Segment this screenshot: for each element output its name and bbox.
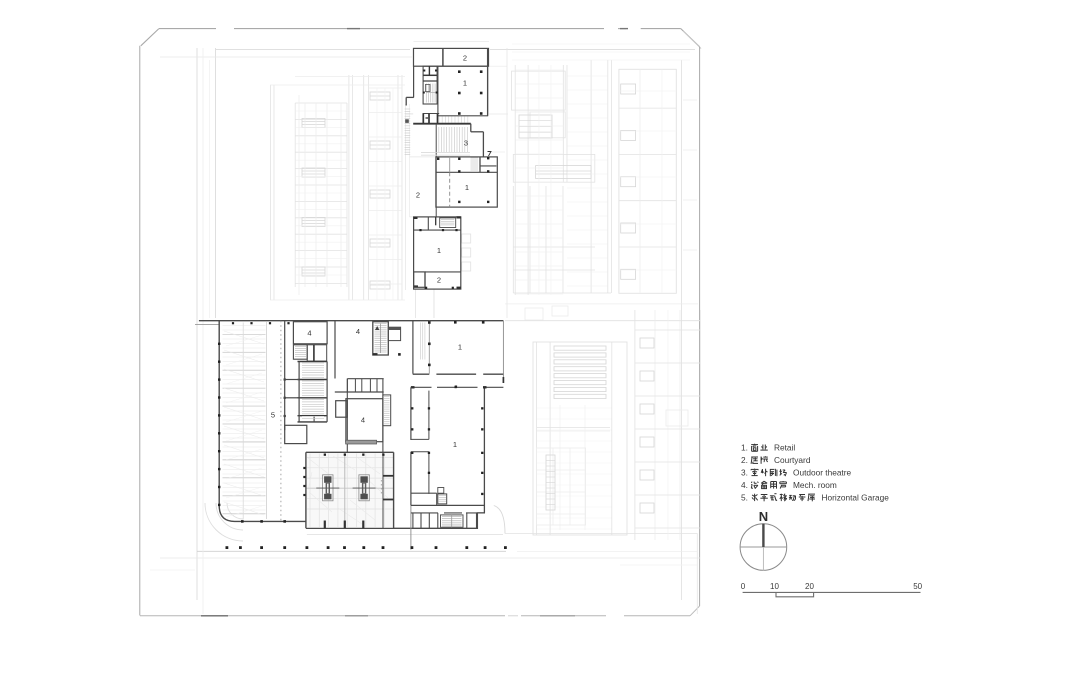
svg-text:5: 5	[271, 411, 275, 420]
svg-text:Courtyard: Courtyard	[774, 455, 811, 465]
svg-text:Mech. room: Mech. room	[793, 480, 837, 490]
svg-text:1: 1	[463, 79, 467, 88]
svg-text:1.: 1.	[741, 443, 748, 453]
svg-text:1: 1	[458, 343, 462, 352]
svg-text:3.: 3.	[741, 467, 748, 477]
svg-text:1: 1	[453, 440, 457, 449]
svg-text:10: 10	[770, 582, 779, 591]
svg-text:1: 1	[465, 183, 469, 192]
svg-text:4.: 4.	[741, 480, 748, 490]
svg-text:20: 20	[805, 582, 814, 591]
svg-text:4: 4	[356, 327, 360, 336]
svg-text:1: 1	[437, 246, 441, 255]
svg-text:3: 3	[464, 138, 468, 147]
svg-text:2: 2	[416, 191, 420, 200]
svg-text:4: 4	[361, 416, 365, 425]
svg-text:Horizontal Garage: Horizontal Garage	[822, 492, 890, 502]
svg-text:4: 4	[307, 329, 311, 338]
svg-text:0: 0	[741, 582, 746, 591]
svg-text:50: 50	[913, 582, 922, 591]
svg-text:N: N	[759, 509, 768, 524]
svg-text:Retail: Retail	[774, 443, 795, 453]
svg-text:2: 2	[463, 54, 467, 63]
svg-text:5.: 5.	[741, 492, 748, 502]
svg-text:2.: 2.	[741, 455, 748, 465]
svg-text:Outdoor theatre: Outdoor theatre	[793, 467, 852, 477]
svg-text:2: 2	[437, 275, 441, 284]
